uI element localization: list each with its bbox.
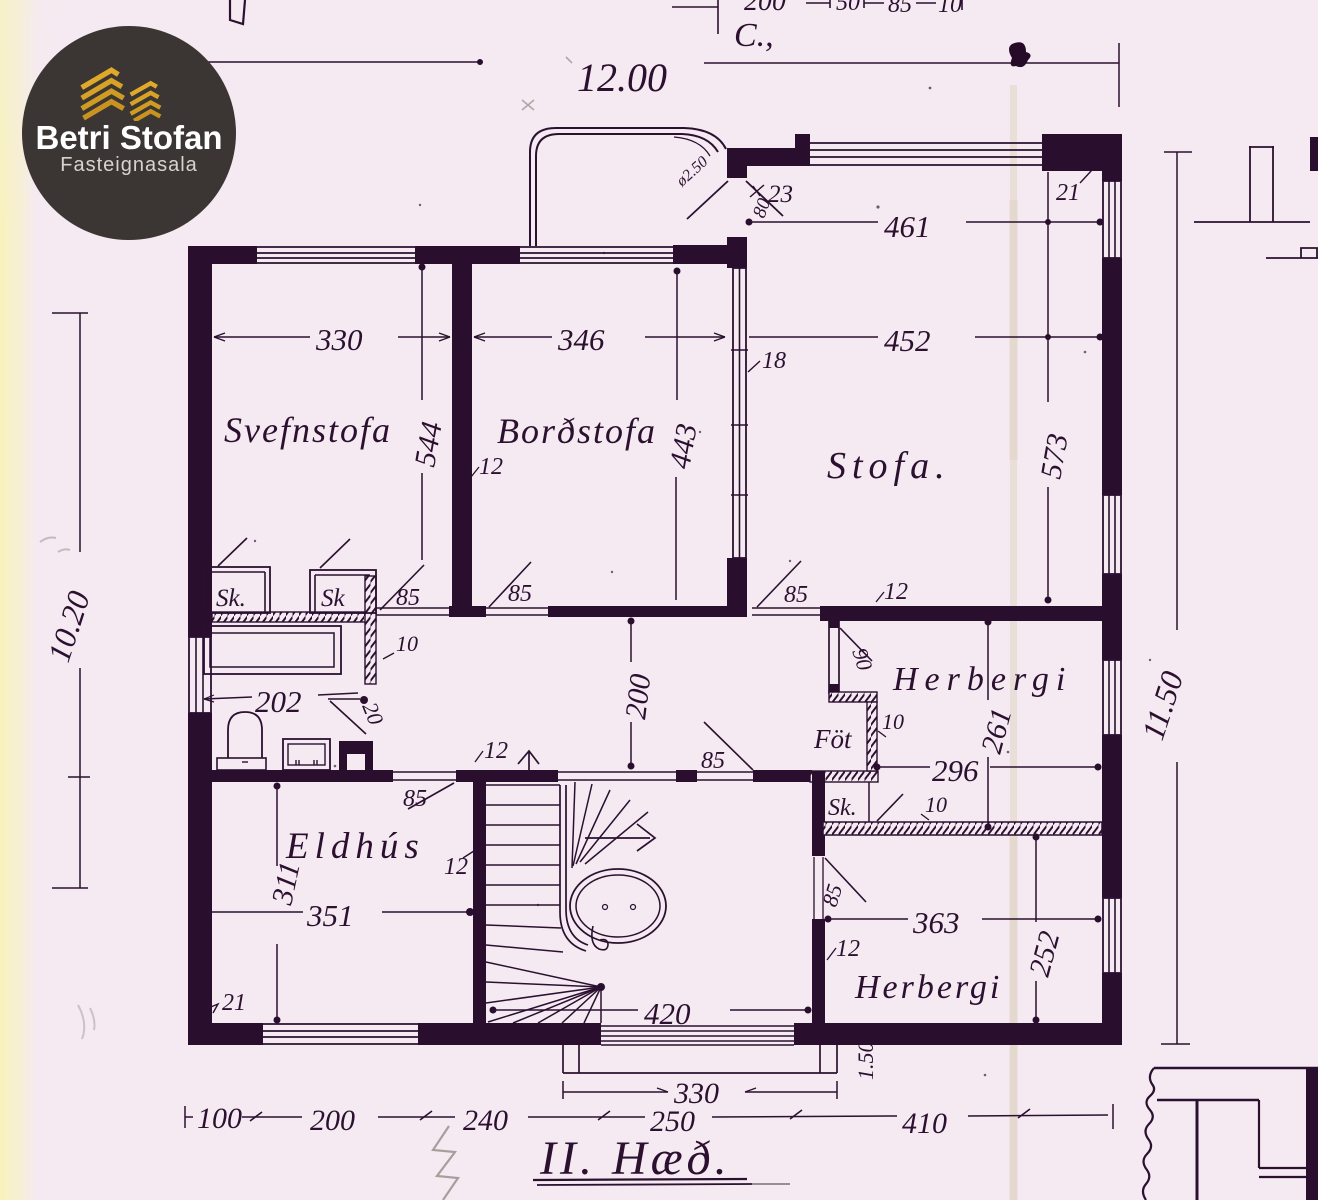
svg-text:202: 202 <box>255 684 302 719</box>
svg-text:Eldhús: Eldhús <box>285 826 425 867</box>
svg-text:Herbergi: Herbergi <box>892 661 1072 698</box>
svg-text:85: 85 <box>701 748 725 774</box>
svg-text:200: 200 <box>744 0 786 17</box>
svg-text:10: 10 <box>925 792 947 817</box>
svg-text:21: 21 <box>1056 180 1080 206</box>
svg-text:363: 363 <box>912 905 960 940</box>
svg-text:10: 10 <box>882 709 904 734</box>
svg-text:Borðstofa: Borðstofa <box>497 411 657 451</box>
svg-text:12: 12 <box>484 738 508 764</box>
svg-text:Föt: Föt <box>813 724 853 754</box>
svg-text:351: 351 <box>306 898 354 933</box>
svg-text:Sk.: Sk. <box>828 795 857 821</box>
svg-text:12: 12 <box>884 579 908 605</box>
svg-text:Svefnstofa: Svefnstofa <box>224 410 392 450</box>
svg-text:200: 200 <box>310 1104 355 1137</box>
svg-text:21: 21 <box>222 990 246 1016</box>
svg-text:346: 346 <box>557 322 605 357</box>
svg-text:330: 330 <box>315 322 363 357</box>
svg-text:240: 240 <box>463 1104 508 1137</box>
svg-text:10: 10 <box>938 0 962 18</box>
svg-text:12.00: 12.00 <box>577 55 667 100</box>
svg-text:200: 200 <box>619 672 657 721</box>
svg-text:452: 452 <box>884 323 931 358</box>
svg-text:85: 85 <box>396 585 420 611</box>
svg-text:Herbergi: Herbergi <box>854 969 1002 1006</box>
svg-text:85: 85 <box>888 0 912 18</box>
svg-text:296: 296 <box>932 753 979 788</box>
svg-text:Sk.: Sk. <box>216 585 246 612</box>
svg-text:85: 85 <box>403 786 427 812</box>
svg-text:100: 100 <box>197 1102 242 1135</box>
svg-text:85: 85 <box>508 581 532 607</box>
svg-text:410: 410 <box>902 1107 947 1140</box>
svg-text:C.,: C., <box>734 17 774 54</box>
svg-text:10: 10 <box>396 631 418 656</box>
svg-text:II. Hæð.: II. Hæð. <box>539 1132 731 1185</box>
svg-text:1.50: 1.50 <box>853 1042 878 1081</box>
svg-text:12: 12 <box>836 936 860 962</box>
svg-text:Sk: Sk <box>321 585 346 612</box>
svg-text:85: 85 <box>784 582 808 608</box>
svg-text:Stofa.: Stofa. <box>827 445 951 487</box>
svg-text:23: 23 <box>768 181 793 208</box>
svg-text:18: 18 <box>762 348 786 374</box>
svg-text:50: 50 <box>836 0 860 16</box>
svg-text:420: 420 <box>644 996 691 1031</box>
svg-text:461: 461 <box>884 209 931 244</box>
svg-text:12: 12 <box>479 454 503 480</box>
